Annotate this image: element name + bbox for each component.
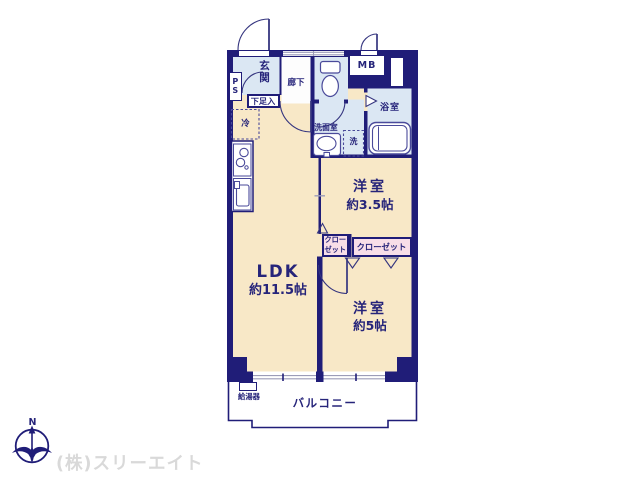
- bathtub: [369, 123, 411, 155]
- refrigerator-label: 冷: [234, 119, 257, 130]
- closet-large-label: クローゼット: [357, 241, 407, 253]
- ldk-name-label: LDK: [240, 262, 316, 283]
- wall-washroom-bathroom: [364, 111, 368, 158]
- balcony-window-right: [324, 372, 386, 383]
- washbasin-tap: [324, 153, 330, 158]
- bathroom-label: 浴室: [374, 103, 406, 115]
- wall-chunk-bottom-right: [397, 357, 418, 372]
- compass-north-label: N: [26, 417, 39, 429]
- wall-bath-stub-top: [364, 89, 368, 93]
- meter-box: MB: [349, 55, 385, 76]
- entrance-door-arc: [238, 19, 269, 50]
- bedroom-small-name-label: 洋室: [332, 178, 408, 196]
- water-heater-box: [239, 382, 257, 391]
- company-name: (株)スリーエイト: [56, 450, 204, 475]
- meter-box-door-arc: [361, 34, 377, 50]
- bedroom-small-size-label: 約3.5帖: [332, 197, 408, 213]
- meter-box-label: MB: [358, 60, 377, 71]
- closet-large-box: クローゼット: [352, 237, 412, 258]
- balcony-label: バルコニー: [283, 396, 367, 411]
- water-heater-label: 給湯器: [234, 392, 264, 401]
- washroom-label: 洗面室: [311, 123, 341, 133]
- compass: [12, 426, 52, 463]
- floorplan-page: PS 下足入 MB クロー ゼット クローゼット 玄関 廊下 冷 洗面室 洗 浴…: [0, 0, 640, 480]
- pipe-space-box: PS: [229, 72, 243, 101]
- ldk-size-label: 約11.5帖: [240, 283, 316, 300]
- shoe-cabinet-label: 下足入: [251, 97, 276, 105]
- shaft-box: [390, 57, 404, 87]
- pipe-space-label: PS: [231, 78, 240, 96]
- wall-toilet-stub-left: [315, 100, 320, 104]
- bedroom-large-name-label: 洋室: [332, 300, 408, 318]
- wall-bottom-left: [227, 372, 253, 383]
- wall-chunk-bottom-left: [227, 357, 247, 372]
- wall-right: [412, 50, 419, 382]
- toilet-bowl: [322, 76, 338, 97]
- wall-genkan-hallway: [280, 57, 282, 95]
- closet-small-label: クロー ゼット: [324, 235, 346, 256]
- toilet-tank: [321, 62, 341, 74]
- closet-small-box: クロー ゼット: [322, 234, 350, 257]
- kitchen-tap: [235, 182, 240, 189]
- washing-machine-label: 洗: [345, 137, 362, 147]
- washbasin-bowl: [317, 136, 336, 150]
- genkan-label: 玄関: [258, 61, 271, 85]
- wall-bottom-center: [316, 372, 324, 383]
- entrance-door-opening: [239, 51, 269, 56]
- bedroom-large-size-label: 約5帖: [332, 318, 408, 334]
- shoe-cabinet-box: 下足入: [247, 94, 280, 108]
- wall-bottom-right: [385, 372, 418, 383]
- hallway-label: 廊下: [283, 78, 309, 89]
- balcony-window-left: [253, 372, 316, 383]
